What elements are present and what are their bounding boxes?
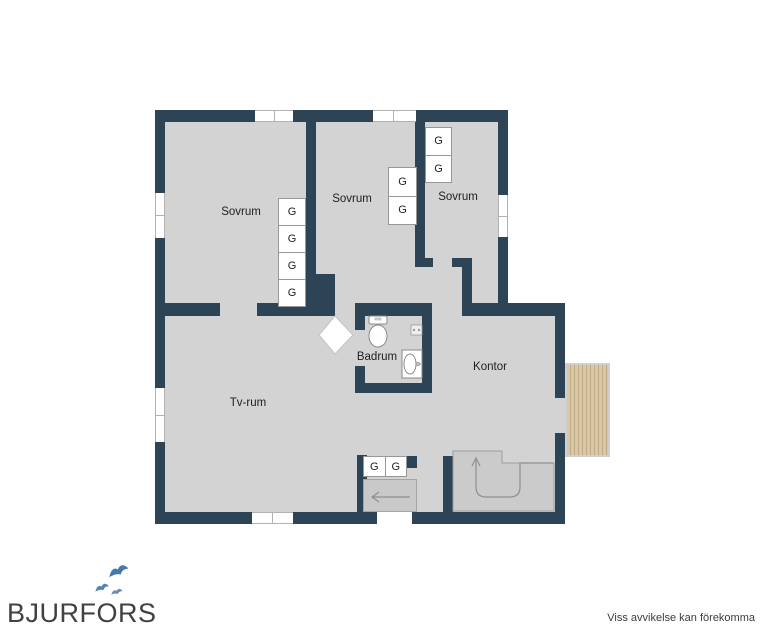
- wall-stair: [443, 456, 453, 512]
- wall-divider1-chunk: [313, 274, 335, 303]
- wall-right-office-upper: [555, 303, 565, 398]
- wardrobe-box: G: [426, 128, 451, 156]
- wall-bathroom-right: [422, 316, 432, 393]
- wardrobe-box: G: [279, 253, 305, 280]
- entry-area: [363, 479, 417, 512]
- floor-plan-page: G G G G G G G G G G Sovrum Sovrum Sovrum…: [0, 0, 768, 640]
- bird-flock-icon: [94, 564, 129, 596]
- room-label-sovrum-right: Sovrum: [428, 191, 488, 203]
- bjurfors-logo: BJURFORS: [7, 598, 157, 629]
- wood-deck: [565, 363, 610, 457]
- wall-hall-stub: [407, 456, 417, 468]
- wardrobe-column-bedroom2: G G: [388, 167, 417, 225]
- wardrobe-box: G: [279, 226, 305, 253]
- window-bottom-1: [252, 512, 293, 524]
- wardrobe-column-bedroom3: G G: [425, 127, 452, 183]
- window-right-1: [498, 195, 508, 237]
- wardrobe-column-bedroom1: G G G G: [278, 198, 306, 307]
- window-left-2: [155, 388, 165, 442]
- window-top-2: [373, 110, 416, 122]
- window-left-1: [155, 193, 165, 238]
- room-label-sovrum-left: Sovrum: [211, 206, 271, 218]
- wardrobe-box: G: [386, 457, 407, 476]
- wall-left: [155, 110, 165, 524]
- wardrobe-box: G: [364, 457, 386, 476]
- wall-stub-cap: [452, 258, 472, 267]
- room-label-kontor: Kontor: [460, 361, 520, 373]
- wall-office-top: [462, 303, 565, 316]
- wall-bathroom-bottom: [355, 383, 432, 393]
- wardrobe-box: G: [389, 168, 416, 197]
- room-label-badrum: Badrum: [350, 351, 404, 363]
- wall-mid-left: [155, 303, 220, 316]
- wardrobe-box: G: [279, 280, 305, 306]
- wall-bathroom-top: [355, 303, 432, 316]
- disclaimer-text: Viss avvikelse kan förekomma: [607, 612, 755, 624]
- wall-bathroom-left-upper: [355, 316, 365, 330]
- entrance-door-gap: [377, 512, 412, 524]
- window-top-1: [255, 110, 293, 122]
- wardrobe-box: G: [279, 199, 305, 226]
- wall-bottom: [155, 512, 565, 524]
- wardrobe-row-hall: G G: [363, 456, 407, 477]
- room-label-sovrum-middle: Sovrum: [322, 193, 382, 205]
- wall-top: [155, 110, 508, 122]
- room-label-tv-rum: Tv-rum: [218, 397, 278, 409]
- wall-divider2-foot: [415, 258, 433, 267]
- wardrobe-box: G: [426, 156, 451, 183]
- wall-right-office-lower: [555, 433, 565, 524]
- floor-deck-doorway: [555, 398, 565, 433]
- wardrobe-box: G: [389, 197, 416, 225]
